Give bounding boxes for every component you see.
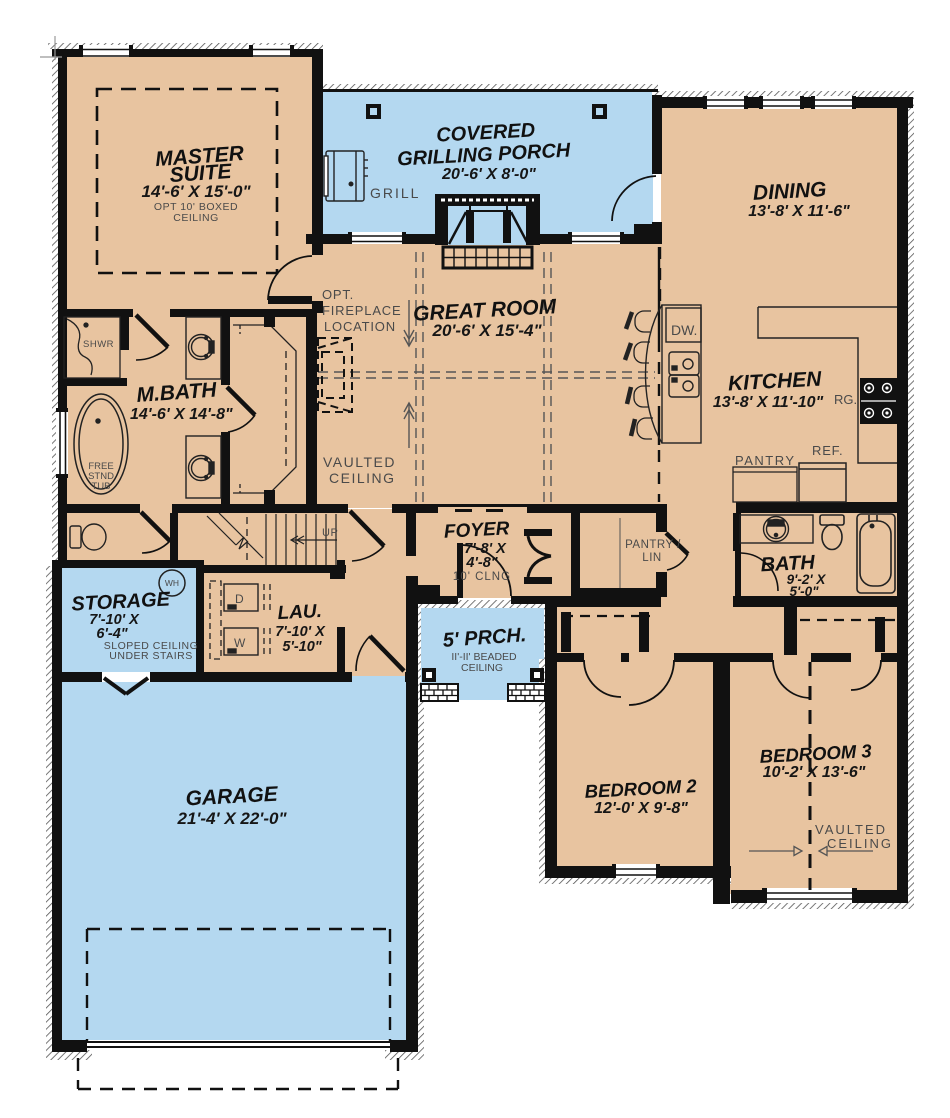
svg-text:20'-6' X 8'-0": 20'-6' X 8'-0" [441,166,536,183]
svg-text:VAULTED: VAULTED [815,822,887,837]
svg-text:DINING: DINING [752,178,827,205]
svg-text:7'-10' X: 7'-10' X [275,624,326,640]
svg-text:5'-0": 5'-0" [789,584,819,599]
svg-text:10' CLNG: 10' CLNG [453,571,511,583]
svg-text:10'-2' X 13'-6": 10'-2' X 13'-6" [763,764,866,781]
svg-text:W: W [234,636,246,650]
svg-text:21'-4' X 22'-0": 21'-4' X 22'-0" [176,809,287,828]
svg-text:13'-8' X 11'-10": 13'-8' X 11'-10" [713,394,824,411]
svg-text:5'-10": 5'-10" [282,639,322,655]
svg-text:14'-6' X 15'-0": 14'-6' X 15'-0" [141,182,251,201]
svg-text:LOCATION: LOCATION [324,319,396,334]
svg-text:SHWR: SHWR [83,339,114,350]
svg-text:REF.: REF. [812,443,843,458]
svg-text:UNDER STAIRS: UNDER STAIRS [109,650,192,662]
svg-text:RG.: RG. [834,392,857,407]
svg-text:FIREPLACE: FIREPLACE [322,303,401,318]
svg-text:20'-6' X 15'-4": 20'-6' X 15'-4" [431,321,542,340]
svg-text:CEILING: CEILING [461,662,503,674]
svg-text:LIN: LIN [642,552,661,564]
svg-text:TUB: TUB [92,481,111,492]
svg-text:GARAGE: GARAGE [185,783,279,811]
svg-text:4'-8": 4'-8" [465,555,498,571]
svg-text:VAULTED: VAULTED [323,454,396,470]
svg-text:GRILL: GRILL [370,185,420,201]
svg-text:UP: UP [322,527,338,539]
svg-text:PANTRY: PANTRY [735,453,796,468]
svg-text:KITCHEN: KITCHEN [727,368,822,396]
svg-text:OPT.: OPT. [322,287,354,302]
svg-text:D: D [235,592,244,606]
svg-text:DW.: DW. [671,322,697,338]
svg-text:CEILING: CEILING [329,470,396,486]
svg-text:12'-0' X 9'-8": 12'-0' X 9'-8" [594,800,688,817]
svg-text:13'-8' X 11'-6": 13'-8' X 11'-6" [748,203,850,220]
svg-text:14'-6' X 14'-8": 14'-6' X 14'-8" [130,406,233,423]
svg-text:WH: WH [165,578,179,588]
svg-text:CEILING: CEILING [173,212,219,224]
svg-text:PANTRY /: PANTRY / [625,539,681,551]
svg-text:LAU.: LAU. [277,601,322,624]
svg-text:FOYER: FOYER [443,518,510,542]
svg-text:CEILING: CEILING [827,836,893,851]
